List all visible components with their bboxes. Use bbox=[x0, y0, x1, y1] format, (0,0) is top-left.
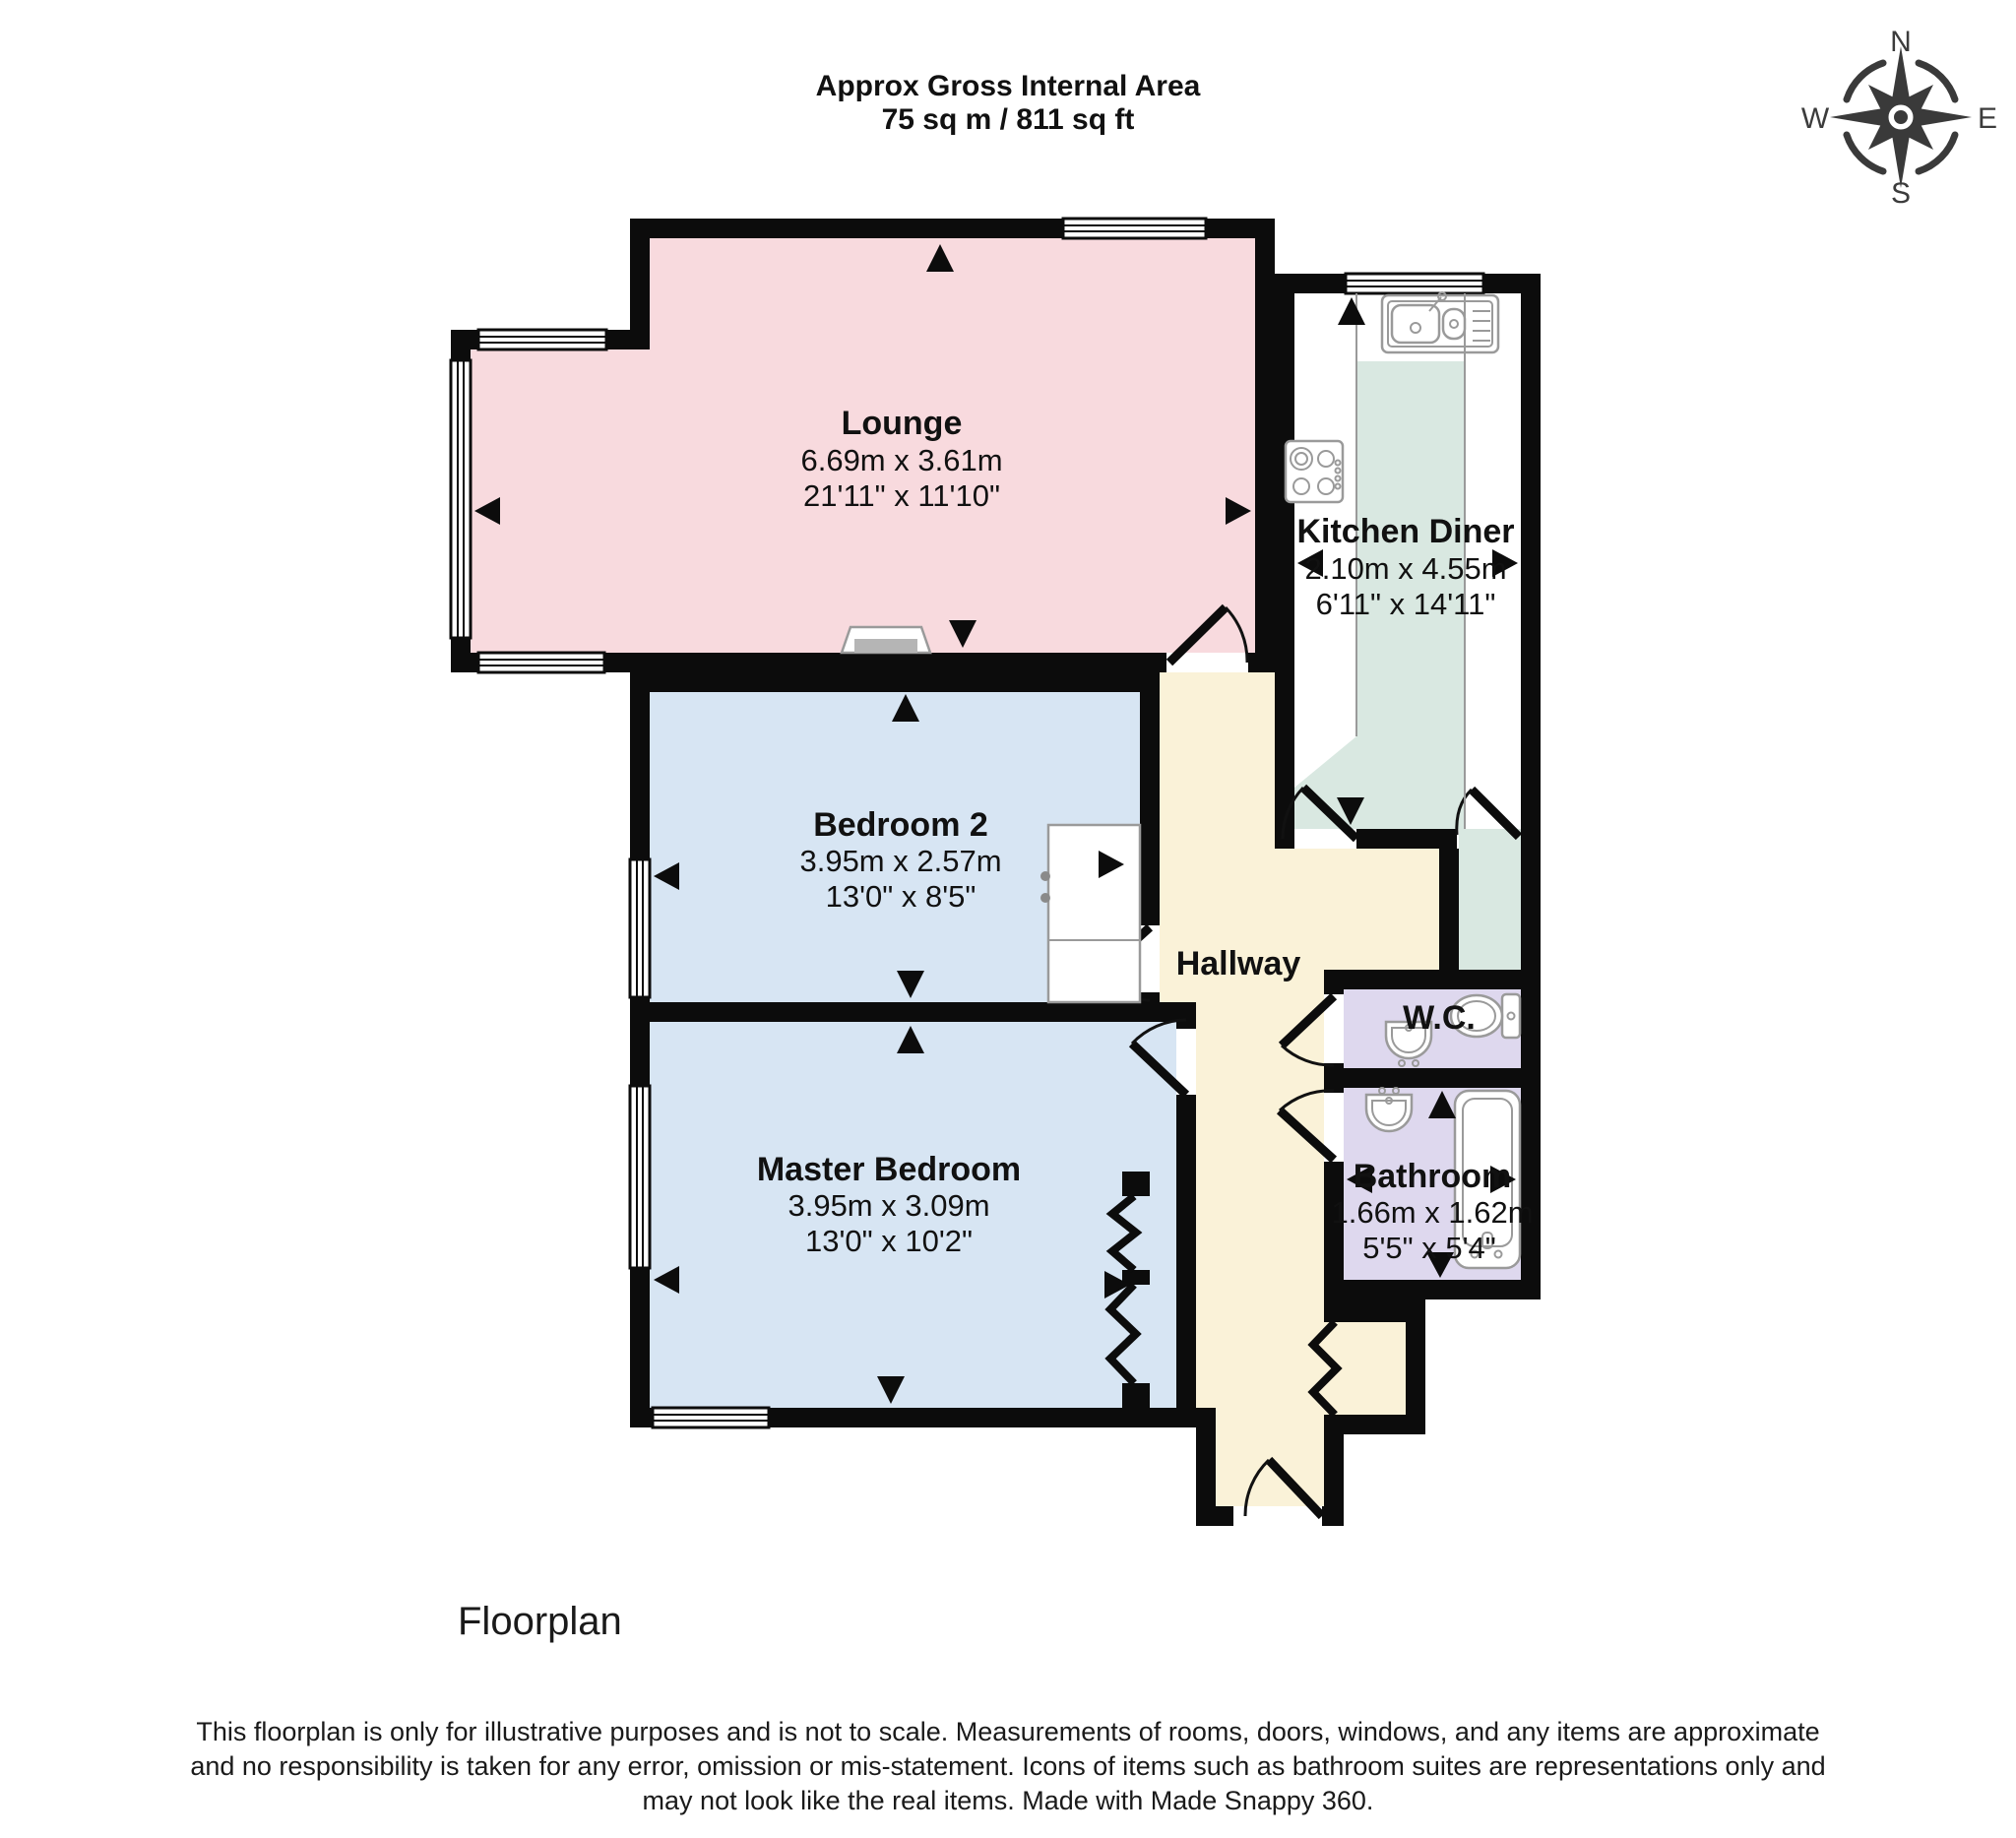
wall-segment bbox=[1255, 219, 1275, 653]
compass-s-label: S bbox=[1891, 177, 1911, 210]
bedroom2-name: Bedroom 2 bbox=[813, 806, 988, 844]
window-icon bbox=[630, 1086, 650, 1268]
disclaimer-line2: and no responsibility is taken for any e… bbox=[190, 1751, 1825, 1781]
wall-segment bbox=[1324, 1280, 1541, 1299]
wall-segment bbox=[1324, 970, 1541, 989]
compass-w-label: W bbox=[1801, 102, 1830, 135]
kitchen-metric: 2.10m x 4.55m bbox=[1304, 551, 1506, 586]
window-icon bbox=[630, 859, 650, 997]
window-icon bbox=[478, 330, 606, 349]
disclaimer-line3: may not look like the real items. Made w… bbox=[643, 1786, 1374, 1815]
kitchen-imperial: 6'11" x 14'11" bbox=[1316, 587, 1496, 621]
wall-segment bbox=[1406, 1299, 1425, 1434]
window-icon bbox=[653, 1408, 769, 1427]
kitchen-name: Kitchen Diner bbox=[1296, 513, 1514, 550]
wall-segment bbox=[630, 1002, 1196, 1022]
floorplan-page: Approx Gross Internal Area 75 sq m / 811… bbox=[0, 0, 2016, 1838]
bedroom2-metric: 3.95m x 2.57m bbox=[799, 844, 1001, 878]
wardrobe-stub bbox=[1122, 1383, 1150, 1408]
window-icon bbox=[1063, 219, 1206, 238]
bedroom2-imperial: 13'0" x 8'5" bbox=[826, 879, 976, 914]
hob-icon bbox=[1286, 441, 1343, 502]
lounge-name: Lounge bbox=[842, 405, 963, 442]
wall-segment bbox=[1521, 274, 1541, 849]
wall-segment bbox=[630, 653, 1160, 692]
compass-e-label: E bbox=[1978, 102, 1997, 135]
lounge-metric: 6.69m x 3.61m bbox=[800, 443, 1002, 477]
tv-unit-icon bbox=[842, 627, 930, 653]
compass-rose-icon: N S E W bbox=[1801, 26, 1997, 210]
window-icon bbox=[478, 653, 604, 672]
bathroom-imperial: 5'5" x 5'4" bbox=[1362, 1231, 1496, 1265]
master-bedroom-metric: 3.95m x 3.09m bbox=[787, 1188, 989, 1223]
wall-segment bbox=[1324, 1415, 1425, 1434]
hallway-name: Hallway bbox=[1176, 945, 1301, 982]
page-title-line1: Approx Gross Internal Area bbox=[816, 70, 1201, 102]
master-bedroom-name: Master Bedroom bbox=[757, 1151, 1021, 1188]
bathroom-metric: 1.66m x 1.62m bbox=[1331, 1195, 1533, 1230]
wall-segment bbox=[1324, 1434, 1344, 1526]
bathroom-basin-icon bbox=[1366, 1088, 1412, 1131]
wardrobe-icon bbox=[1040, 825, 1140, 1002]
kitchen-sink-icon bbox=[1382, 292, 1498, 352]
wall-segment bbox=[1439, 849, 1459, 970]
wardrobe-stub bbox=[1122, 1270, 1150, 1285]
bathroom-name: Bathroom bbox=[1354, 1158, 1512, 1195]
compass-n-label: N bbox=[1890, 26, 1912, 58]
window-icon bbox=[451, 360, 471, 638]
window-icon bbox=[1346, 274, 1483, 293]
wall-segment bbox=[1275, 274, 1294, 849]
lounge-imperial: 21'11" x 11'10" bbox=[803, 478, 1000, 513]
floorplan-caption: Floorplan bbox=[458, 1600, 622, 1643]
master-bedroom-imperial: 13'0" x 10'2" bbox=[805, 1224, 973, 1258]
page-title-line2: 75 sq m / 811 sq ft bbox=[882, 103, 1135, 136]
disclaimer-line1: This floorplan is only for illustrative … bbox=[196, 1717, 1819, 1746]
floorplan-svg: Approx Gross Internal Area 75 sq m / 811… bbox=[0, 0, 2016, 1838]
wall-segment bbox=[1324, 1068, 1541, 1088]
wardrobe-stub bbox=[1122, 1172, 1150, 1196]
kitchen-vestibule-floor bbox=[1459, 829, 1521, 970]
wc-name: W.C. bbox=[1403, 999, 1476, 1037]
